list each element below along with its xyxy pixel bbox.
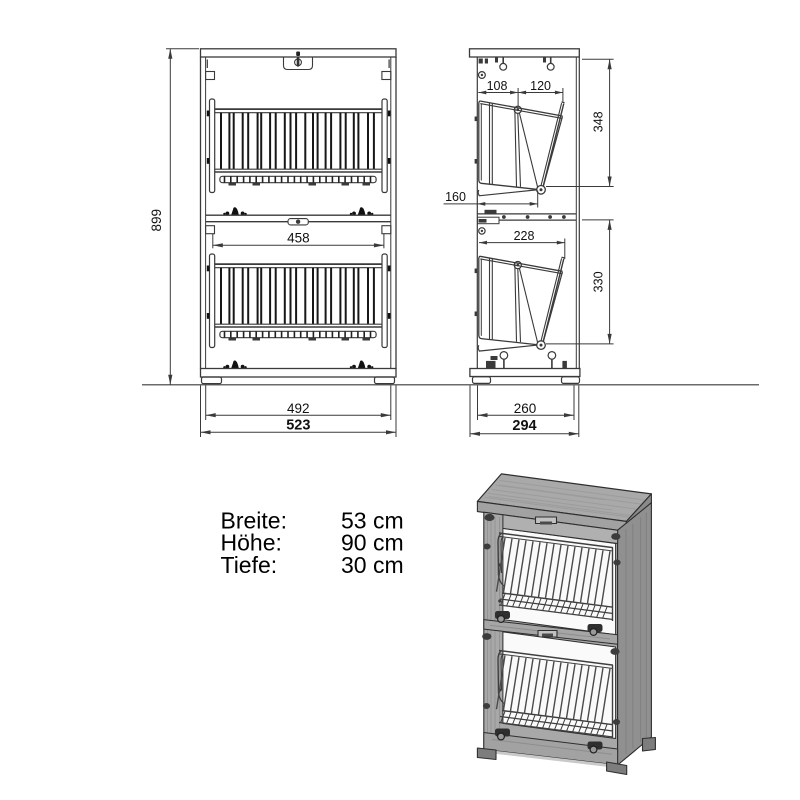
svg-text:120: 120 xyxy=(530,79,551,93)
svg-text:228: 228 xyxy=(514,229,535,243)
svg-text:260: 260 xyxy=(514,401,537,416)
svg-text:458: 458 xyxy=(287,231,310,246)
svg-text:294: 294 xyxy=(512,418,536,434)
svg-text:108: 108 xyxy=(487,79,508,93)
svg-text:523: 523 xyxy=(286,418,310,434)
svg-text:30 cm: 30 cm xyxy=(341,552,404,578)
svg-text:348: 348 xyxy=(592,111,606,132)
svg-text:330: 330 xyxy=(592,271,606,292)
svg-text:Tiefe:: Tiefe: xyxy=(221,552,278,578)
svg-text:492: 492 xyxy=(287,401,310,416)
svg-text:899: 899 xyxy=(149,209,164,232)
svg-text:160: 160 xyxy=(445,190,466,204)
